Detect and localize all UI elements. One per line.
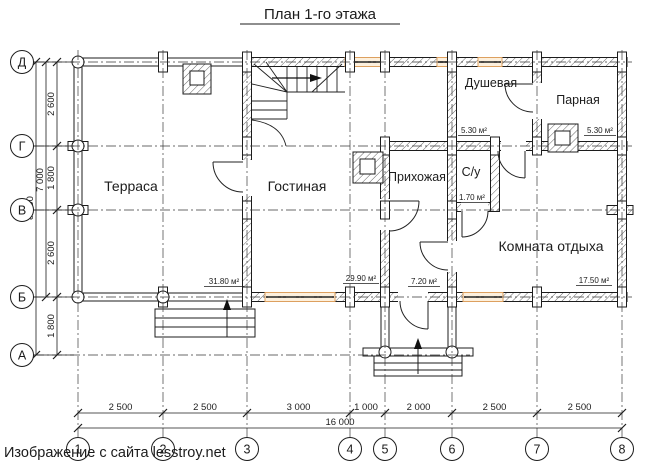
axis-label-row-a: А [18,349,27,363]
axis-label-row-v: В [18,204,26,218]
room-label-wc: С/у [462,165,482,179]
door-shower [498,151,525,178]
dim-bottom-4: 1 000 [354,402,378,413]
dim-bottom-2: 2 500 [193,402,217,413]
axis-label-col-7: 7 [534,443,541,457]
area-label-hallway: 7.20 м² [411,277,437,286]
dim-left-3: 2 600 [46,241,57,265]
area-label-wc: 1.70 м² [459,193,485,202]
area-label-shower: 5.30 м² [461,126,487,135]
dim-left-1: 2 600 [46,92,57,116]
door-hallway-rest [420,242,448,270]
room-label-rest: Комната отдыха [499,238,604,254]
dim-bottom-total: 16 000 [325,417,354,428]
axis-label-row-d: Д [18,56,27,70]
staircase [252,62,345,146]
area-label-steam: 5.30 м² [587,126,613,135]
floor-plan-drawing: План 1-го этажа [0,0,650,464]
axis-label-col-3: 3 [244,443,251,457]
door-terrace-living [213,162,243,192]
axis-label-col-6: 6 [449,443,456,457]
dim-bottom-1: 2 500 [109,402,133,413]
stove-steam [548,124,578,152]
dim-bottom-7: 2 500 [568,402,592,413]
stove-living [353,152,383,183]
dim-bottom-3: 3 000 [287,402,311,413]
dim-left-4: 1 800 [46,314,57,338]
dim-left-total-inner: 7 000 [35,168,46,192]
room-label-shower: Душевая [465,76,517,90]
axis-label-col-5: 5 [382,443,389,457]
door-wc [462,211,488,237]
drawing-title: План 1-го этажа [264,6,377,23]
floor-plan-svg: План 1-го этажа [0,0,650,464]
door-entrance [400,301,428,329]
dim-bottom-5: 2 000 [407,402,431,413]
area-label-terrace: 31.80 м² [209,277,240,286]
room-label-living: Гостиная [268,178,327,194]
room-label-terrace: Терраса [104,178,158,194]
room-label-hallway: Прихожая [388,170,446,184]
watermark: Изображение с сайта lesstroy.net [4,445,226,461]
stove-terrace [183,64,211,94]
area-label-rest: 17.50 м² [579,276,610,285]
terrace-steps [155,309,255,337]
area-label-living: 29.90 м² [346,274,377,283]
axis-label-row-b: Б [18,291,26,305]
room-label-steam: Парная [556,93,600,107]
dim-left-2: 1 800 [46,166,57,190]
axis-label-col-8: 8 [619,443,626,457]
axis-label-row-g: Г [19,140,26,154]
dim-bottom-6: 2 500 [483,402,507,413]
axis-label-col-4: 4 [347,443,354,457]
door-living-hallway [389,201,419,231]
